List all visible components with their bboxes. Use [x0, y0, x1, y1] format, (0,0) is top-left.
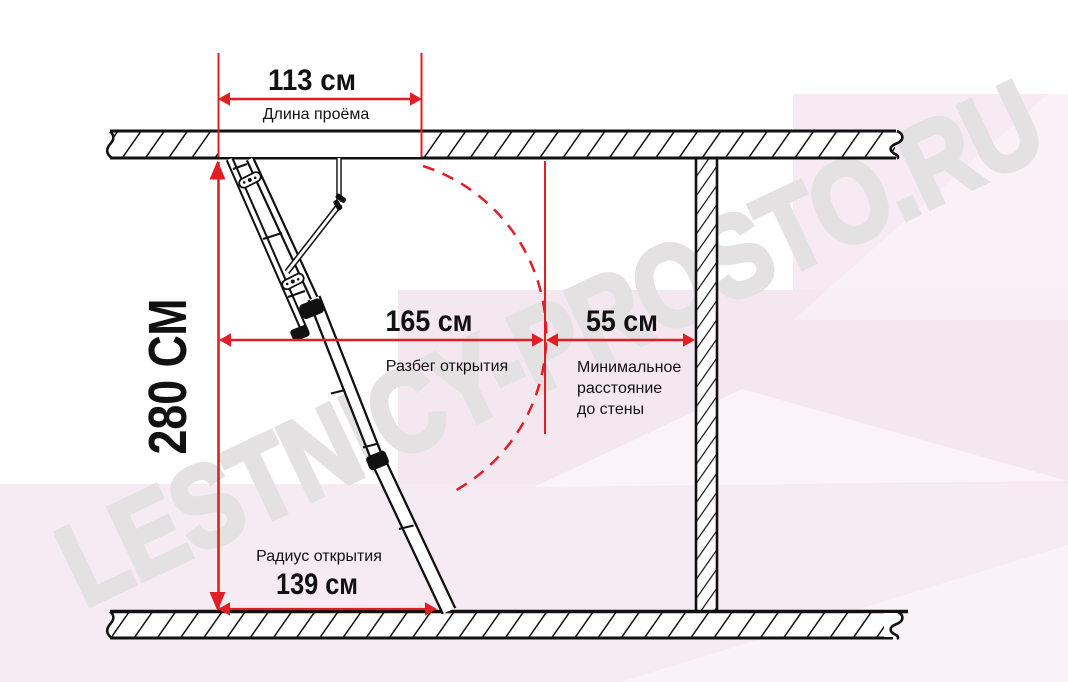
- svg-text:Разбег открытия: Разбег открытия: [386, 358, 508, 375]
- svg-text:до стены: до стены: [577, 401, 644, 418]
- svg-text:Длина проёма: Длина проёма: [263, 106, 370, 123]
- svg-text:139 см: 139 см: [276, 568, 358, 601]
- svg-text:165 см: 165 см: [386, 305, 473, 338]
- svg-text:55 см: 55 см: [586, 305, 658, 338]
- svg-text:113 см: 113 см: [268, 64, 356, 97]
- svg-text:расстояние: расстояние: [577, 380, 662, 397]
- svg-text:Минимальное: Минимальное: [577, 359, 681, 376]
- svg-text:Радиус открытия: Радиус открытия: [256, 548, 382, 565]
- svg-text:280 СМ: 280 СМ: [138, 299, 198, 455]
